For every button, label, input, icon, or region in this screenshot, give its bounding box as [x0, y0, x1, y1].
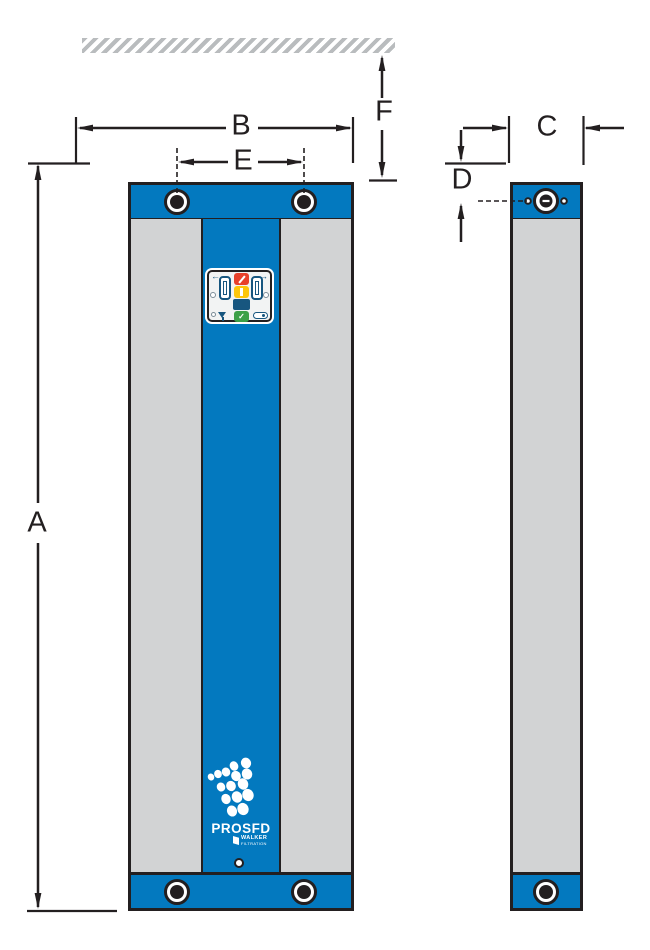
- side-top-manifold: [510, 182, 583, 221]
- bottom-port-right-icon: [291, 879, 317, 905]
- drain-valve-icon: [253, 312, 268, 319]
- front-bottom-manifold: [128, 872, 354, 911]
- dim-label-F: F: [375, 98, 393, 127]
- control-panel: ← → ✓: [207, 270, 272, 322]
- indicator-left-icon: [210, 292, 216, 298]
- dimension-drawing: ← → ✓ PROSFD: [0, 0, 650, 950]
- stop-button-icon: [234, 273, 249, 285]
- tower-gauge-left-icon: [219, 276, 231, 300]
- drain-screw-icon: [234, 858, 244, 868]
- brand-line-2: FILTRATION: [241, 842, 267, 846]
- dim-label-D: D: [452, 166, 473, 195]
- top-port-right-icon: [291, 189, 317, 215]
- front-right-tower: [281, 219, 354, 874]
- dim-label-C: C: [537, 113, 558, 142]
- indicator-bottom-icon: [211, 312, 216, 317]
- side-body: [510, 219, 583, 874]
- front-left-tower: [128, 219, 201, 874]
- bottom-port-left-icon: [164, 879, 190, 905]
- run-button-icon: ✓: [234, 311, 249, 322]
- walker-flag-icon: [233, 836, 239, 845]
- dim-label-E: E: [233, 147, 252, 176]
- side-bottom-port-icon: [533, 879, 559, 905]
- tower-gauge-right-icon: [251, 276, 263, 300]
- standby-button-icon: [234, 286, 249, 298]
- dim-B: [76, 117, 353, 164]
- display-screen-icon: [233, 299, 250, 310]
- front-top-manifold: [128, 182, 354, 221]
- drain-funnel-icon: [218, 312, 227, 322]
- ceiling-hatch: [82, 38, 395, 53]
- indicator-right-icon: [263, 292, 269, 298]
- dim-label-A: A: [27, 509, 46, 538]
- dim-label-B: B: [231, 112, 250, 141]
- walker-filtration-logo: WALKER FILTRATION: [233, 836, 267, 846]
- product-name: PROSFD: [204, 821, 278, 836]
- prosfd-dots-logo: [200, 755, 270, 825]
- top-port-left-icon: [164, 189, 190, 215]
